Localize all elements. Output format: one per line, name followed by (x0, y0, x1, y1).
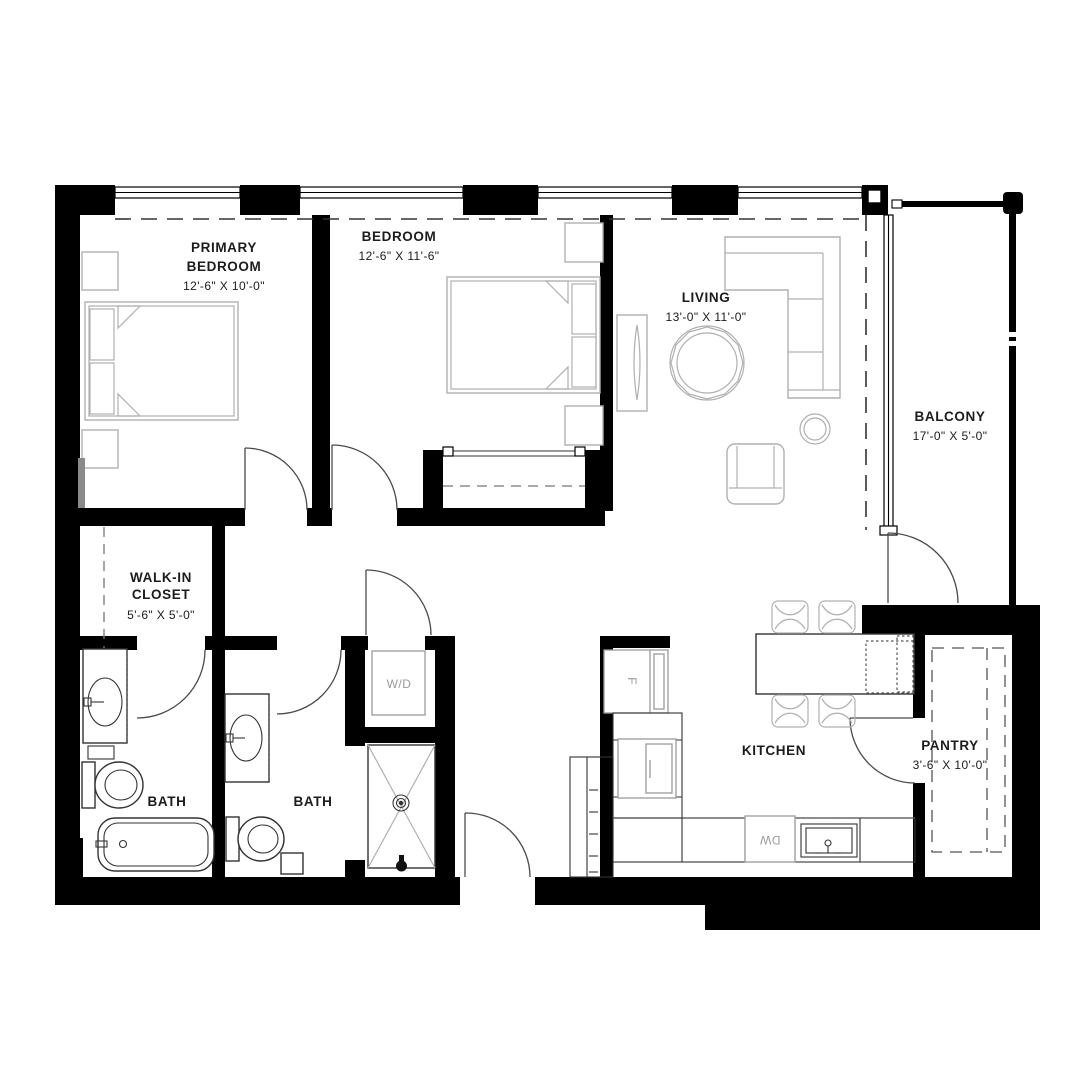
svg-text:3'-6" X 10'-0": 3'-6" X 10'-0" (913, 758, 988, 772)
bath-2-door (277, 650, 341, 714)
nightstand (565, 406, 603, 445)
armchair-icon (727, 444, 784, 504)
svg-text:BATH: BATH (148, 794, 187, 809)
label-bath-1: BATH (148, 794, 187, 809)
svg-text:5'-6" X 5'-0": 5'-6" X 5'-0" (127, 608, 195, 622)
window-icon (300, 187, 463, 198)
refrigerator-label: F (625, 677, 639, 685)
nightstand (565, 223, 603, 262)
shower-icon (368, 745, 435, 872)
washer-dryer-label: W/D (387, 677, 412, 691)
svg-text:BEDROOM: BEDROOM (362, 229, 437, 244)
nightstand (82, 252, 118, 290)
dresser (78, 458, 85, 508)
toilet-icon (226, 817, 284, 861)
window-icon (115, 187, 240, 198)
bed-icon (447, 277, 600, 393)
bath-1-door (137, 650, 205, 718)
primary-bedroom-door (245, 448, 307, 510)
wall-niche (281, 853, 303, 874)
svg-text:BEDROOM: BEDROOM (187, 259, 262, 274)
bath-2-fixtures (225, 694, 435, 874)
kitchen-sink-icon (801, 824, 857, 857)
svg-text:BALCONY: BALCONY (915, 409, 986, 424)
label-bedroom: BEDROOM 12'-6" X 11'-6" (359, 229, 440, 263)
svg-text:PANTRY: PANTRY (921, 738, 979, 753)
bath-1-fixtures (82, 649, 214, 871)
floor-plan: PRIMARY BEDROOM 12'-6" X 10'-0" BEDROOM … (0, 0, 1080, 1080)
label-primary-bedroom: PRIMARY BEDROOM 12'-6" X 10'-0" (183, 240, 265, 293)
closet-sliding-track (443, 447, 585, 486)
dining-chair-icon (772, 695, 808, 727)
window-icon (738, 187, 862, 198)
stove-icon (618, 739, 676, 798)
living-furniture (617, 237, 840, 504)
balcony-sliding-door (880, 215, 897, 535)
bathtub-icon (96, 818, 214, 871)
svg-text:13'-0" X 11'-0": 13'-0" X 11'-0" (666, 310, 747, 324)
svg-text:PRIMARY: PRIMARY (191, 240, 257, 255)
label-pantry: PANTRY 3'-6" X 10'-0" (913, 738, 988, 772)
label-living: LIVING 13'-0" X 11'-0" (666, 290, 747, 324)
svg-text:17'-0" X 5'-0": 17'-0" X 5'-0" (913, 429, 988, 443)
bed-icon (85, 302, 238, 420)
svg-text:12'-6" X 10'-0": 12'-6" X 10'-0" (183, 279, 265, 293)
washer-dryer-door (366, 570, 431, 635)
label-balcony: BALCONY 17'-0" X 5'-0" (913, 409, 988, 443)
dining-chair-icon (819, 601, 855, 633)
nightstand (82, 430, 118, 468)
svg-text:12'-6" X 11'-6": 12'-6" X 11'-6" (359, 249, 440, 263)
label-bath-2: BATH (294, 794, 333, 809)
tv-console-icon (617, 315, 647, 411)
dishwasher-label: DW (759, 833, 780, 847)
bedroom-furniture (443, 223, 603, 486)
balcony-railing (892, 192, 1023, 605)
entry-door (465, 813, 530, 877)
dining-chair-icon (772, 601, 808, 633)
svg-text:BATH: BATH (294, 794, 333, 809)
pantry-door (850, 718, 915, 783)
counter-left (613, 713, 682, 818)
svg-text:WALK-IN: WALK-IN (130, 570, 192, 585)
round-table-icon (670, 326, 744, 400)
balcony-door (888, 533, 958, 603)
corner-window-jamb (868, 190, 881, 203)
label-kitchen: KITCHEN (742, 743, 806, 758)
vanity-sink-icon (83, 649, 127, 759)
svg-text:CLOSET: CLOSET (132, 587, 191, 602)
bedroom-door (332, 445, 397, 510)
label-walk-in-closet: WALK-IN CLOSET 5'-6" X 5'-0" (127, 570, 195, 622)
vanity-sink-icon (225, 694, 269, 782)
svg-text:KITCHEN: KITCHEN (742, 743, 806, 758)
window-icon (538, 187, 672, 198)
toilet-icon (82, 762, 143, 808)
side-table-icon (800, 414, 830, 444)
svg-text:LIVING: LIVING (682, 290, 731, 305)
floor-plan-page: PRIMARY BEDROOM 12'-6" X 10'-0" BEDROOM … (0, 0, 1080, 1080)
